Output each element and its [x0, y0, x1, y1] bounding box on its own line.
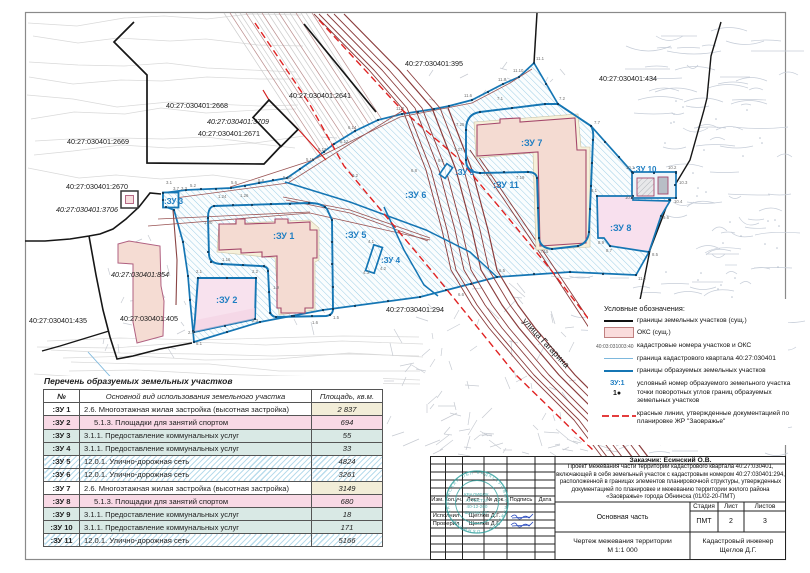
svg-text:9.6: 9.6: [663, 215, 670, 220]
svg-text:6.12: 6.12: [340, 139, 349, 144]
svg-text:10.2: 10.2: [668, 165, 677, 170]
svg-text::ЗУ 3: :ЗУ 3: [164, 197, 184, 206]
svg-text:8.5: 8.5: [652, 252, 659, 257]
svg-text:11.6: 11.6: [464, 93, 473, 98]
svg-text::ЗУ 10: :ЗУ 10: [633, 165, 657, 174]
svg-text:КВАЛИФИК.: КВАЛИФИК.: [464, 492, 490, 497]
svg-text:8.7: 8.7: [606, 248, 613, 253]
svg-text:10.4: 10.4: [674, 199, 683, 204]
svg-text:5.8: 5.8: [258, 178, 265, 183]
svg-text:1.9: 1.9: [273, 285, 280, 290]
svg-text:10.5: 10.5: [625, 195, 634, 200]
svg-text::ЗУ 7: :ЗУ 7: [521, 138, 542, 148]
svg-text:40:27:030401:2641: 40:27:030401:2641: [289, 91, 351, 100]
svg-text:5.11: 5.11: [306, 157, 315, 162]
svg-text:4.1: 4.1: [368, 239, 375, 244]
svg-text:3.3: 3.3: [181, 186, 188, 191]
svg-text:5.13: 5.13: [318, 147, 327, 152]
svg-text:5.1: 5.1: [196, 341, 203, 346]
svg-text:7.2: 7.2: [559, 96, 566, 101]
svg-text:1.6: 1.6: [312, 320, 319, 325]
svg-text:11.3: 11.3: [396, 106, 405, 111]
svg-text:40:27:030401:435: 40:27:030401:435: [29, 316, 87, 325]
svg-text:40:27:030401:3709: 40:27:030401:3709: [207, 117, 269, 126]
svg-text:40:27:030401:434: 40:27:030401:434: [599, 74, 657, 83]
svg-text:8.1: 8.1: [591, 188, 598, 193]
svg-text:5.10: 5.10: [283, 175, 292, 180]
svg-text:1.16: 1.16: [222, 257, 231, 262]
svg-text:4.3: 4.3: [363, 270, 370, 275]
svg-text:40:27:030401:294: 40:27:030401:294: [386, 305, 444, 314]
svg-text:3.7: 3.7: [173, 186, 180, 191]
svg-text:6.6: 6.6: [458, 292, 465, 297]
svg-text::ЗУ 6: :ЗУ 6: [405, 190, 426, 200]
svg-text:10.3: 10.3: [679, 180, 688, 185]
svg-text:3.1: 3.1: [166, 180, 173, 185]
svg-text:1.24: 1.24: [218, 194, 227, 199]
svg-text:11.10: 11.10: [513, 68, 524, 73]
svg-text:40:27:030401:2669: 40:27:030401:2669: [67, 137, 129, 146]
svg-text:2.1: 2.1: [196, 269, 203, 274]
svg-text:5.6: 5.6: [231, 180, 238, 185]
svg-text::ЗУ 5: :ЗУ 5: [345, 230, 366, 240]
svg-text:1.5: 1.5: [333, 315, 340, 320]
svg-text:9.1: 9.1: [438, 158, 445, 163]
svg-text:7.15: 7.15: [540, 249, 549, 254]
svg-text:40:27:030401:2668: 40:27:030401:2668: [166, 101, 228, 110]
svg-text::ЗУ 2: :ЗУ 2: [216, 295, 237, 305]
svg-text:6.8: 6.8: [411, 168, 418, 173]
svg-text::ЗУ 8: :ЗУ 8: [610, 223, 631, 233]
svg-text:7.25: 7.25: [456, 122, 465, 127]
svg-text:11.1: 11.1: [536, 56, 545, 61]
svg-text::ЗУ 9: :ЗУ 9: [455, 168, 475, 177]
svg-text:2.2: 2.2: [252, 269, 259, 274]
svg-text:6.14: 6.14: [348, 125, 357, 130]
svg-text:4.2: 4.2: [380, 266, 387, 271]
svg-text:5.2: 5.2: [190, 183, 197, 188]
svg-text:6.5: 6.5: [499, 268, 506, 273]
svg-text:40:27:030401:2670: 40:27:030401:2670: [66, 182, 128, 191]
svg-text:40:27:030401:3706: 40:27:030401:3706: [56, 205, 118, 214]
svg-text:Щеглов Д.Г.: Щеглов Д.Г.: [464, 510, 489, 515]
svg-text:2.3: 2.3: [252, 318, 259, 323]
svg-text:40-12-260: 40-12-260: [467, 504, 488, 509]
svg-text:2.4: 2.4: [188, 330, 195, 335]
svg-text:40:27:030401:395: 40:27:030401:395: [405, 59, 463, 68]
svg-text:АТТЕСТАТ: АТТЕСТАТ: [466, 498, 489, 503]
svg-text:40:27:030401:854: 40:27:030401:854: [111, 270, 169, 279]
svg-text:7.20: 7.20: [483, 172, 492, 177]
svg-text:7.1: 7.1: [497, 96, 504, 101]
svg-text:40:27:030401:405: 40:27:030401:405: [120, 314, 178, 323]
svg-text:1.20: 1.20: [204, 220, 213, 225]
svg-text:7.27: 7.27: [454, 147, 463, 152]
svg-text::ЗУ 11: :ЗУ 11: [493, 180, 519, 190]
svg-text::ЗУ 1: :ЗУ 1: [273, 231, 294, 241]
svg-text:7.7: 7.7: [594, 120, 601, 125]
svg-text:6.2: 6.2: [352, 173, 359, 178]
svg-text::ЗУ 4: :ЗУ 4: [381, 256, 401, 265]
svg-text:1.26: 1.26: [240, 193, 249, 198]
svg-text:40:27:030401:2671: 40:27:030401:2671: [198, 129, 260, 138]
svg-text:8.9: 8.9: [598, 240, 605, 245]
svg-text:11.2: 11.2: [638, 276, 647, 281]
svg-text:11.8: 11.8: [498, 77, 507, 82]
